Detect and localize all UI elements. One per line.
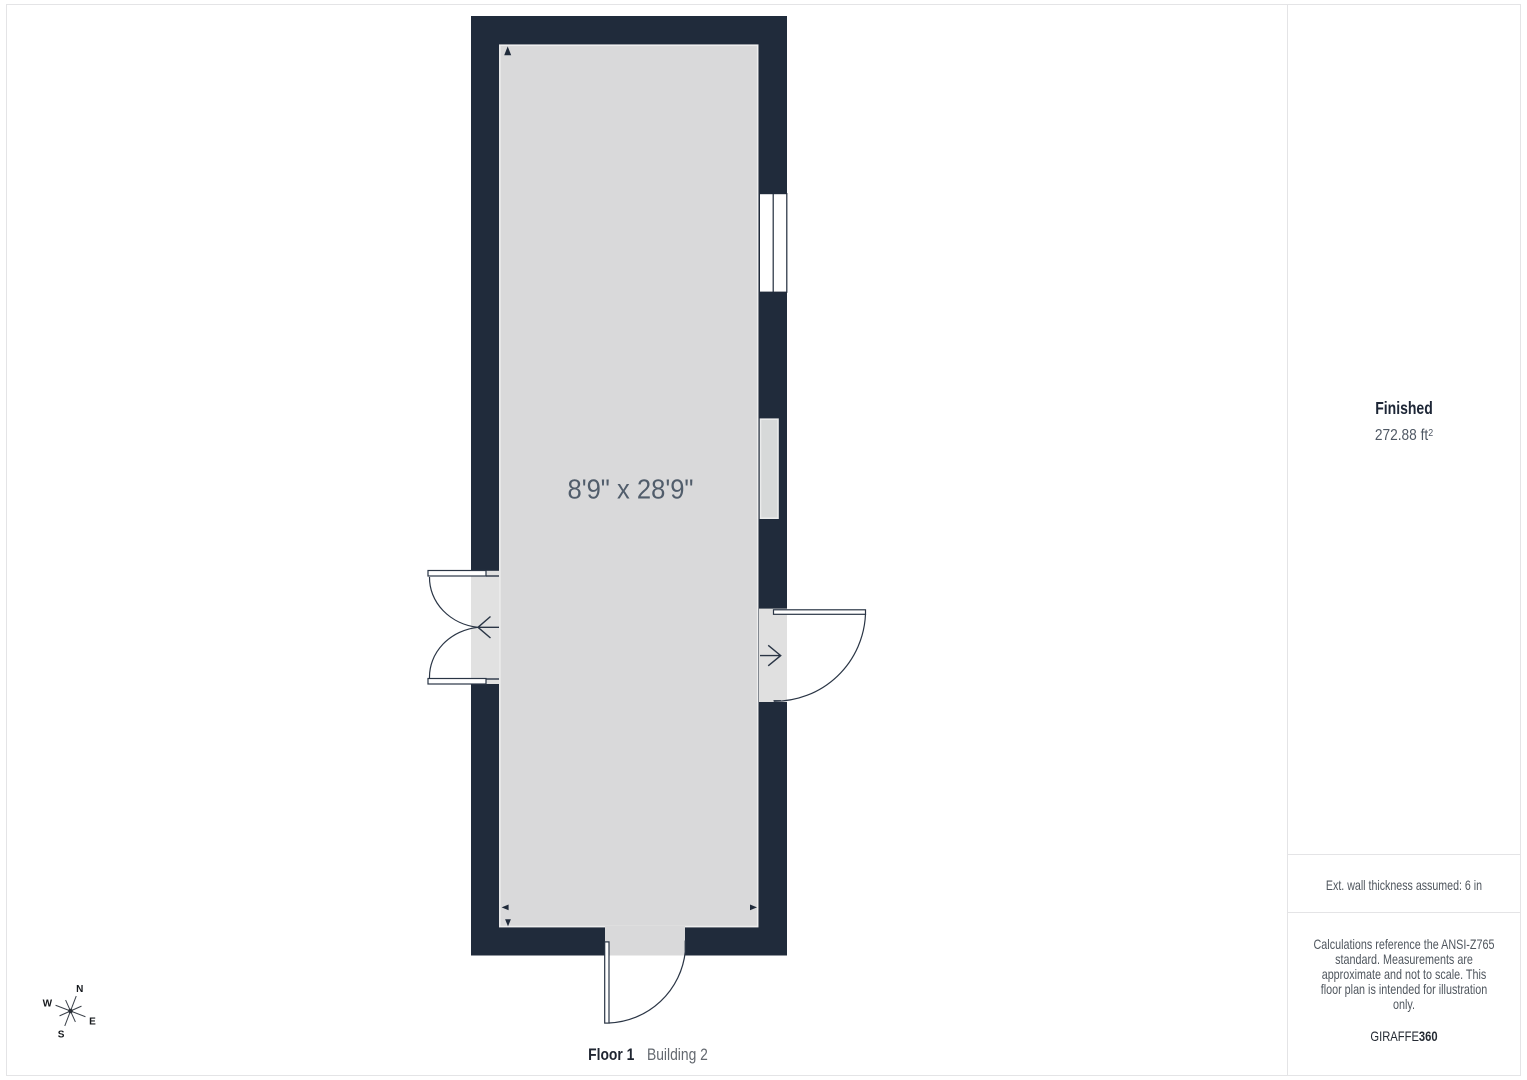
svg-text:W: W xyxy=(43,998,53,1009)
svg-text:N: N xyxy=(76,984,83,995)
svg-text:E: E xyxy=(89,1016,96,1027)
svg-text:S: S xyxy=(58,1029,65,1040)
svg-text:8'9" x 28'9": 8'9" x 28'9" xyxy=(567,474,693,505)
